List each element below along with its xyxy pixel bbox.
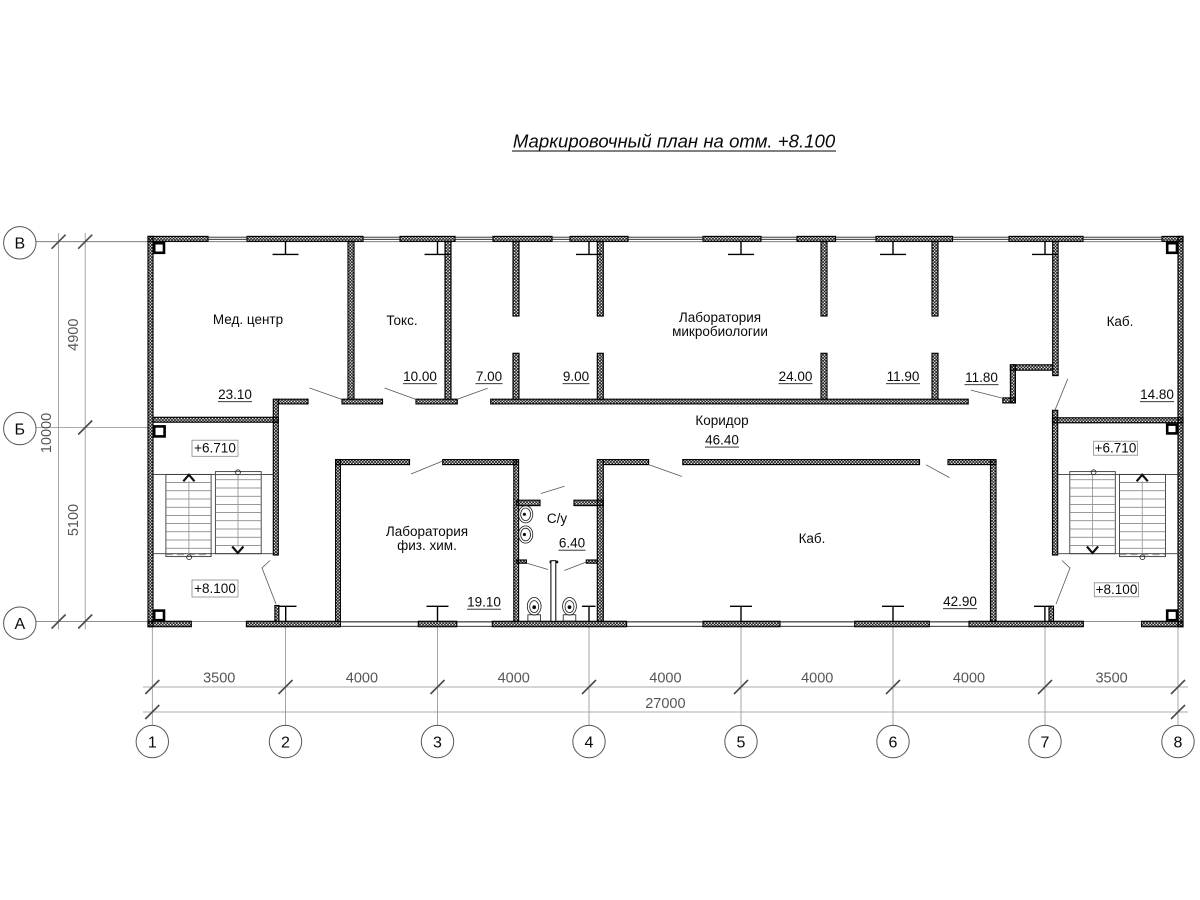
svg-text:2: 2 [281,734,290,751]
svg-text:А: А [14,616,25,633]
svg-text:4000: 4000 [801,671,833,687]
svg-text:7: 7 [1041,734,1050,751]
svg-text:8: 8 [1174,734,1183,751]
svg-text:физ. хим.: физ. хим. [397,538,457,553]
svg-text:Коридор: Коридор [695,413,748,428]
svg-text:11.90: 11.90 [887,369,920,384]
svg-text:+8.100: +8.100 [1096,582,1138,597]
svg-text:3: 3 [433,734,442,751]
svg-text:5: 5 [737,734,746,751]
svg-text:4000: 4000 [498,671,530,687]
svg-text:14.80: 14.80 [1140,387,1174,402]
svg-text:10.00: 10.00 [403,369,437,384]
svg-text:19.10: 19.10 [467,595,501,610]
svg-text:Б: Б [15,421,26,438]
svg-text:Токс.: Токс. [386,313,417,328]
svg-text:4000: 4000 [649,671,681,687]
svg-text:В: В [14,236,25,253]
svg-text:Лаборатория: Лаборатория [386,524,468,539]
svg-text:4900: 4900 [66,319,82,351]
svg-text:46.40: 46.40 [705,432,739,447]
svg-text:24.00: 24.00 [779,369,813,384]
svg-text:27000: 27000 [645,696,685,712]
svg-text:10000: 10000 [39,413,55,453]
svg-text:11.80: 11.80 [965,370,998,385]
svg-text:4: 4 [585,734,594,751]
svg-text:7.00: 7.00 [476,369,502,384]
svg-text:+6.710: +6.710 [1095,440,1137,455]
svg-text:3500: 3500 [1095,671,1127,687]
svg-text:42.90: 42.90 [943,594,977,609]
svg-text:Лаборатория: Лаборатория [679,310,761,325]
svg-text:Мед. центр: Мед. центр [213,312,283,327]
svg-text:5100: 5100 [66,504,82,536]
svg-text:Каб.: Каб. [799,531,826,546]
svg-text:4000: 4000 [346,671,378,687]
svg-text:Каб.: Каб. [1107,314,1134,329]
svg-text:+6.710: +6.710 [194,441,236,456]
svg-text:+8.100: +8.100 [194,581,236,596]
svg-text:6: 6 [889,734,898,751]
svg-text:Маркировочный план на отм. +8.: Маркировочный план на отм. +8.100 [513,131,836,152]
svg-text:3500: 3500 [203,671,235,687]
svg-text:1: 1 [148,734,157,751]
svg-text:микробиологии: микробиологии [672,324,768,339]
svg-text:9.00: 9.00 [563,369,589,384]
svg-text:С/у: С/у [547,511,568,526]
svg-text:23.10: 23.10 [218,387,252,402]
svg-text:6.40: 6.40 [559,536,585,551]
svg-text:4000: 4000 [953,671,985,687]
